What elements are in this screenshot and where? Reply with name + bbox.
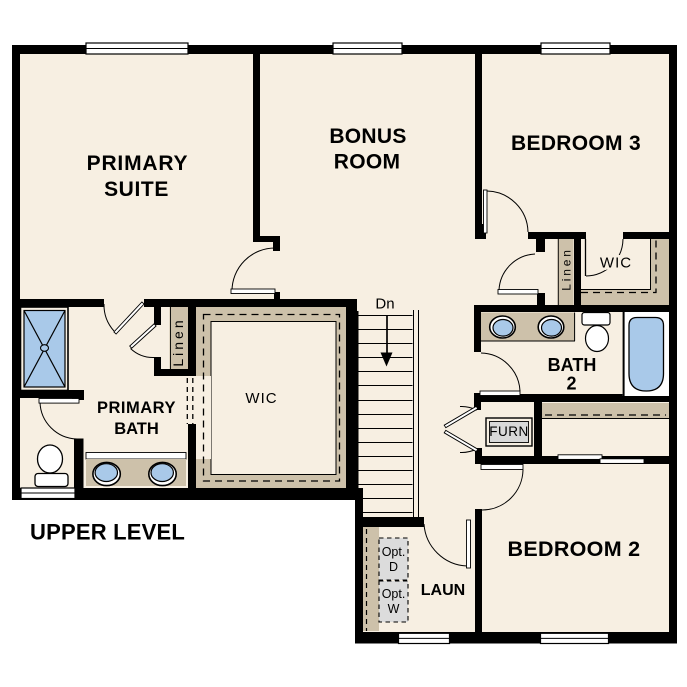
svg-text:Opt.: Opt. [382,545,406,559]
svg-text:BEDROOM 2: BEDROOM 2 [508,537,641,561]
svg-text:UPPER LEVEL: UPPER LEVEL [30,520,185,545]
svg-text:BONUS: BONUS [329,125,406,148]
svg-text:Linen: Linen [560,247,574,290]
svg-text:WIC: WIC [600,255,632,272]
svg-text:BEDROOM 3: BEDROOM 3 [511,132,641,155]
svg-text:Dn: Dn [375,296,394,313]
svg-text:BATH: BATH [114,420,159,438]
svg-text:D: D [389,560,398,574]
svg-text:FURN: FURN [489,424,529,439]
svg-text:W: W [388,602,400,616]
svg-text:BATH: BATH [548,355,597,375]
svg-text:SUITE: SUITE [104,178,169,201]
svg-text:2: 2 [566,374,576,394]
svg-text:Opt.: Opt. [382,587,406,601]
svg-text:PRIMARY: PRIMARY [87,152,189,175]
svg-text:PRIMARY: PRIMARY [97,399,176,417]
svg-text:Linen: Linen [170,317,186,366]
svg-text:LAUN: LAUN [421,582,465,599]
svg-text:ROOM: ROOM [334,151,401,174]
svg-text:WIC: WIC [245,390,277,407]
